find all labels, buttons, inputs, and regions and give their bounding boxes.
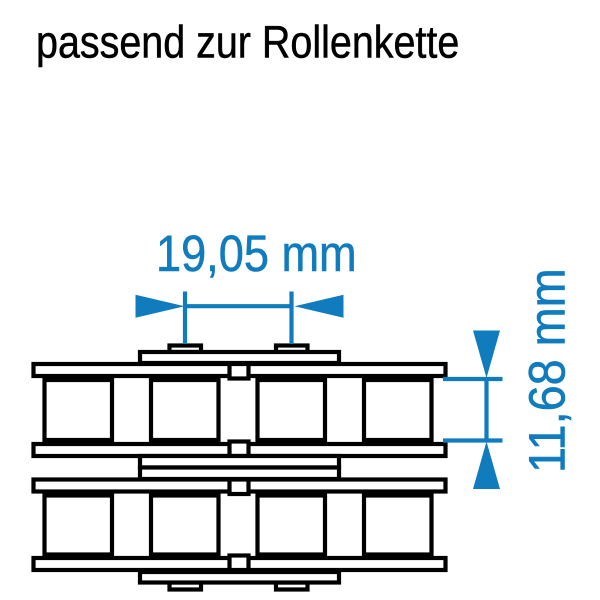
svg-text:passend zur Rollenkette: passend zur Rollenkette <box>36 17 459 67</box>
svg-text:11,68 mm: 11,68 mm <box>520 268 576 473</box>
svg-text:19,05 mm: 19,05 mm <box>156 225 357 282</box>
